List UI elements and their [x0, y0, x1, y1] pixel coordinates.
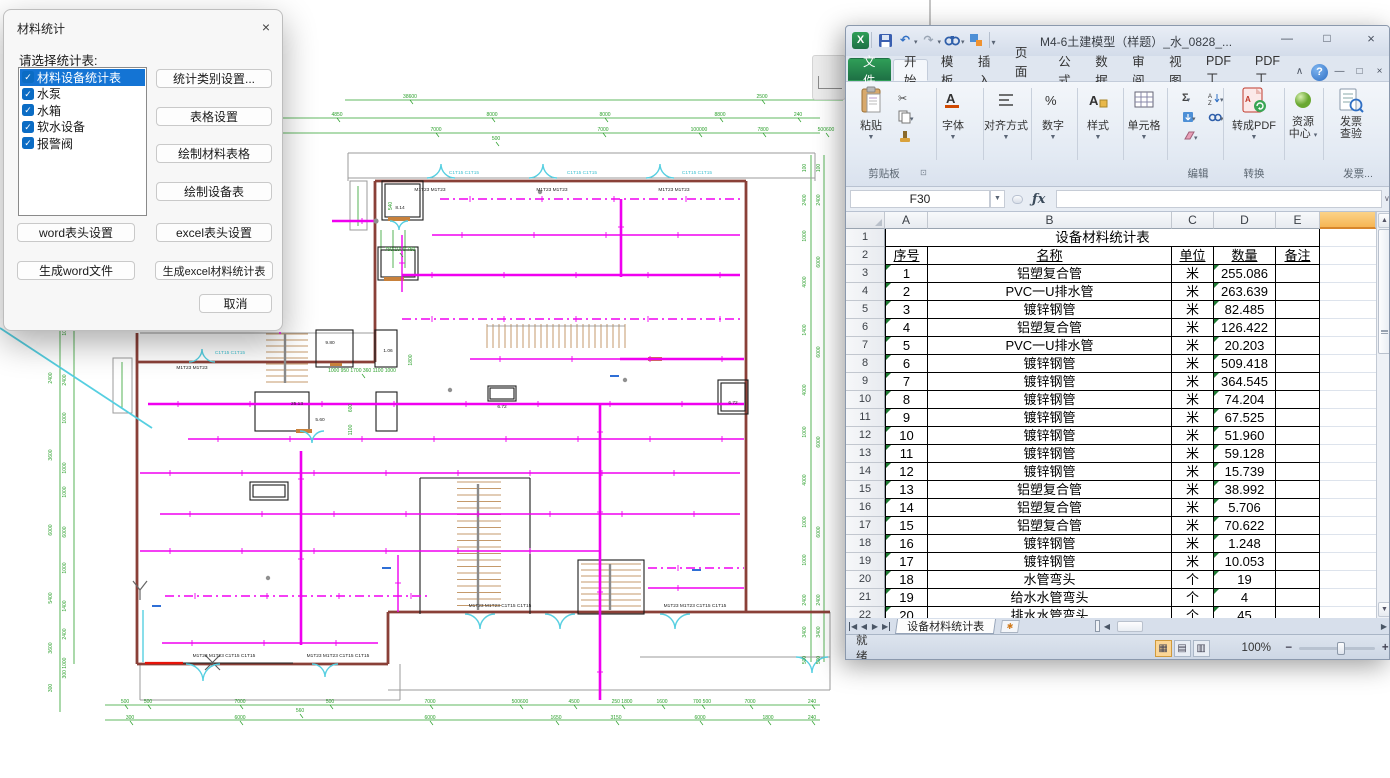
- number-as-text-triangle: [886, 301, 891, 306]
- table-cell[interactable]: [1276, 571, 1320, 589]
- table-cell[interactable]: [1276, 589, 1320, 607]
- cancel-button[interactable]: 取消: [199, 294, 272, 313]
- cad-text-label: 4000: [802, 384, 808, 395]
- table-cell[interactable]: 509.418: [1214, 355, 1276, 373]
- table-cell[interactable]: [1276, 481, 1320, 499]
- table-cell[interactable]: 74.204: [1214, 391, 1276, 409]
- table-cell[interactable]: 8: [885, 391, 928, 409]
- statistics-table-list[interactable]: ✓材料设备统计表✓水泵✓水箱✓软水设备✓报警阀: [18, 67, 147, 216]
- row-header-13[interactable]: 13: [846, 445, 885, 463]
- table-cell[interactable]: 5.706: [1214, 499, 1276, 517]
- table-cell[interactable]: 7: [885, 373, 928, 391]
- scrollbar-thumb[interactable]: [1378, 229, 1390, 354]
- table-cell[interactable]: 米: [1172, 391, 1214, 409]
- svg-text:%: %: [1045, 93, 1057, 108]
- cad-text-label: 3600: [48, 642, 54, 653]
- table-cell[interactable]: 3: [885, 301, 928, 319]
- table-cell[interactable]: 镀锌钢管: [928, 391, 1172, 409]
- excel-window: X ↶▾ ↷▾ ▾ ▾ M4-6土建模型（样题）_水_0828_... — □ …: [845, 25, 1390, 660]
- checkbox-checked-icon[interactable]: ✓: [22, 137, 34, 149]
- table-cell[interactable]: 米: [1172, 373, 1214, 391]
- cad-text-label: M1T23 M1T23 C1T15 C1T15: [469, 603, 532, 609]
- table-cell[interactable]: 19: [1214, 571, 1276, 589]
- table-cell[interactable]: 20.203: [1214, 337, 1276, 355]
- number-as-text-triangle: [886, 427, 891, 432]
- ribbon-tab-公式[interactable]: 公式: [1047, 59, 1082, 81]
- cad-text-label: 750 1000 750: [385, 247, 416, 253]
- table-cell[interactable]: 255.086: [1214, 265, 1276, 283]
- table-cell[interactable]: 镀锌钢管: [928, 355, 1172, 373]
- screen: { "dialog": { "title": "材料统计", "close": …: [0, 0, 1390, 778]
- number-as-text-triangle: [1214, 445, 1219, 450]
- formula-bar-expand-icon[interactable]: ∨: [1384, 194, 1390, 203]
- row-header-15[interactable]: 15: [846, 481, 885, 499]
- column-headers[interactable]: ABCDE: [846, 212, 1376, 229]
- row-header-5[interactable]: 5: [846, 301, 885, 319]
- convert-to-pdf-button[interactable]: A 转成PDF ▼: [1232, 86, 1276, 141]
- cad-text-label: 500: [802, 656, 808, 665]
- table-cell[interactable]: 米: [1172, 319, 1214, 337]
- table-cell[interactable]: 镀锌钢管: [928, 463, 1172, 481]
- table-cell[interactable]: 10.053: [1214, 553, 1276, 571]
- cad-text-label: 560: [296, 708, 305, 714]
- ribbon-tab-模板[interactable]: 模板: [930, 59, 965, 81]
- number-as-text-triangle: [1214, 571, 1219, 576]
- select-all-corner[interactable]: [846, 212, 885, 229]
- table-cell[interactable]: 82.485: [1214, 301, 1276, 319]
- table-cell[interactable]: [1276, 517, 1320, 535]
- table-cell[interactable]: [1276, 463, 1320, 481]
- table-cell[interactable]: [1276, 553, 1320, 571]
- table-cell[interactable]: 镀锌钢管: [928, 553, 1172, 571]
- ribbon-tab-插入[interactable]: 插入: [967, 59, 1002, 81]
- alignment-group-button[interactable]: 对齐方式▼: [984, 86, 1028, 141]
- name-box[interactable]: F30: [850, 190, 990, 208]
- last-sheet-icon[interactable]: ▶: [882, 622, 890, 631]
- row-header-4[interactable]: 4: [846, 283, 885, 301]
- clipboard-group-label: 剪贴板: [868, 166, 900, 181]
- close-icon[interactable]: ×: [254, 16, 278, 38]
- table-cell[interactable]: 15: [885, 517, 928, 535]
- workbook-minimize-icon[interactable]: —: [1331, 64, 1348, 81]
- cad-text-label: 6.72: [728, 400, 738, 406]
- table-cell[interactable]: 38.992: [1214, 481, 1276, 499]
- table-cell[interactable]: 米: [1172, 409, 1214, 427]
- table-cell[interactable]: [1276, 319, 1320, 337]
- statistics-table-option[interactable]: ✓材料设备统计表: [20, 69, 145, 86]
- table-cell[interactable]: 镀锌钢管: [928, 301, 1172, 319]
- table-cell[interactable]: [1276, 607, 1320, 618]
- paste-button[interactable]: 粘贴 ▼: [849, 86, 893, 141]
- statistics-table-option[interactable]: ✓水箱: [20, 102, 145, 119]
- table-cell[interactable]: 19: [885, 589, 928, 607]
- ribbon: 粘贴 ▼ ✂ ▾ 剪贴板 ⊡ A字体▼对齐方式▼%数字▼A样式▼单元格▼ Σ▾ …: [846, 82, 1390, 187]
- cad-text-label: M1T23 M1T23: [536, 187, 568, 193]
- fitting-dots: [266, 190, 627, 580]
- table-header-cell[interactable]: 备注: [1276, 247, 1320, 265]
- minimize-button[interactable]: —: [1270, 30, 1304, 48]
- ribbon-tab-bar: 文件开始模板插入页面布公式数据审阅视图PDF工PDF工∧?—□×: [846, 56, 1390, 82]
- cad-text-label: M1T23 M1T23 C1T15 C1T15: [307, 653, 370, 659]
- table-cell[interactable]: 铝塑复合管: [928, 319, 1172, 337]
- number-as-text-triangle: [886, 499, 891, 504]
- table-cell[interactable]: 镀锌钢管: [928, 535, 1172, 553]
- table-cell[interactable]: [1276, 445, 1320, 463]
- styles-group-button[interactable]: A样式▼: [1076, 86, 1120, 141]
- cad-text-label: 500600: [512, 699, 529, 705]
- table-cell[interactable]: 米: [1172, 517, 1214, 535]
- number-as-text-triangle: [1214, 319, 1219, 324]
- table-cell[interactable]: 16: [885, 535, 928, 553]
- cad-text-label: 6.72: [497, 404, 507, 410]
- table-cell[interactable]: [1276, 265, 1320, 283]
- cad-text-label: 2400: [802, 594, 808, 605]
- table-cell[interactable]: 51.960: [1214, 427, 1276, 445]
- draw-material-table-button[interactable]: 绘制材料表格: [156, 144, 272, 163]
- cad-text-label: 2400: [802, 194, 808, 205]
- table-cell[interactable]: 米: [1172, 535, 1214, 553]
- row-header-11[interactable]: 11: [846, 409, 885, 427]
- draw-equipment-table-button[interactable]: 绘制设备表: [156, 182, 272, 201]
- table-cell[interactable]: [1276, 427, 1320, 445]
- insert-worksheet-icon[interactable]: ✱: [1000, 620, 1020, 633]
- cad-panel-divider: [929, 0, 931, 26]
- ribbon-tab-页面布[interactable]: 页面布: [1004, 59, 1045, 81]
- cad-text-label: 240: [808, 699, 817, 705]
- number-as-text-triangle: [1214, 517, 1219, 522]
- formula-input[interactable]: [1056, 190, 1382, 208]
- help-icon[interactable]: ?: [1311, 64, 1328, 81]
- cad-text-label: 5400: [48, 592, 54, 603]
- statistics-table-option[interactable]: ✓报警阀: [20, 135, 145, 152]
- prev-sheet-icon[interactable]: ◀: [860, 622, 868, 631]
- convert-group-label: 转换: [1244, 166, 1265, 181]
- collapse-ribbon-icon[interactable]: ∧: [1291, 64, 1308, 81]
- table-cell[interactable]: PVC一U排水管: [928, 337, 1172, 355]
- number-group-button[interactable]: %数字▼: [1031, 86, 1075, 141]
- generate-word-file-button[interactable]: 生成word文件: [17, 261, 135, 280]
- table-cell[interactable]: 镀锌钢管: [928, 427, 1172, 445]
- cad-text-label: 100: [816, 164, 822, 173]
- cad-text-label: 500: [816, 656, 822, 665]
- table-cell[interactable]: 70.622: [1214, 517, 1276, 535]
- number-as-text-triangle: [1214, 481, 1219, 486]
- cad-text-label: 1000: [802, 516, 808, 527]
- row-header-6[interactable]: 6: [846, 319, 885, 337]
- row-header-16[interactable]: 16: [846, 499, 885, 517]
- table-cell[interactable]: 排水水管弯头: [928, 607, 1172, 618]
- ribbon-tab-PDF工[interactable]: PDF工: [1195, 59, 1242, 81]
- checkbox-checked-icon[interactable]: ✓: [22, 71, 34, 83]
- invoice-doc-icon: [1331, 86, 1371, 114]
- copy-icon[interactable]: ▾: [898, 109, 918, 125]
- table-cell[interactable]: 45: [1214, 607, 1276, 618]
- table-cell[interactable]: 米: [1172, 445, 1214, 463]
- formula-collapse-pill[interactable]: [1012, 195, 1023, 204]
- column-header-B[interactable]: B: [928, 212, 1172, 229]
- table-cell[interactable]: 1.248: [1214, 535, 1276, 553]
- column-header-C[interactable]: C: [1172, 212, 1214, 229]
- fill-down-icon[interactable]: ▾: [1182, 109, 1202, 125]
- table-cell[interactable]: 米: [1172, 355, 1214, 373]
- invoice-group-label: 发票...: [1343, 166, 1373, 181]
- cad-text-label: 8000: [599, 112, 610, 118]
- cad-text-label: 2400: [816, 594, 822, 605]
- table-cell[interactable]: 12: [885, 463, 928, 481]
- cad-text-label: 6000: [816, 346, 822, 357]
- ribbon-tab-数据[interactable]: 数据: [1084, 59, 1119, 81]
- name-box-dropdown-icon[interactable]: ▼: [990, 190, 1005, 208]
- sort-filter-icon[interactable]: AZ▾: [1208, 90, 1228, 106]
- excel-header-settings-button[interactable]: excel表头设置: [156, 223, 272, 242]
- table-cell[interactable]: 铝塑复合管: [928, 265, 1172, 283]
- cad-text-label: 8800: [714, 112, 725, 118]
- table-cell[interactable]: 1: [885, 265, 928, 283]
- table-cell[interactable]: 126.422: [1214, 319, 1276, 337]
- number-as-text-triangle: [1214, 409, 1219, 414]
- table-cell[interactable]: 4: [1214, 589, 1276, 607]
- page-break-view-icon[interactable]: ▥: [1193, 640, 1210, 657]
- maximize-button[interactable]: □: [1310, 30, 1344, 48]
- number-as-text-triangle: [1214, 499, 1219, 504]
- table-cell[interactable]: 铝塑复合管: [928, 517, 1172, 535]
- table-header-cell[interactable]: 序号: [885, 247, 928, 265]
- cad-text-label: M1T23 M1T23 C1T15 C1T15: [664, 603, 727, 609]
- column-header-A[interactable]: A: [885, 212, 928, 229]
- cad-text-label: 2400: [816, 194, 822, 205]
- table-cell[interactable]: 铝塑复合管: [928, 481, 1172, 499]
- ribbon-tab-视图[interactable]: 视图: [1158, 59, 1193, 81]
- row-header-14[interactable]: 14: [846, 463, 885, 481]
- table-cell[interactable]: 镀锌钢管: [928, 409, 1172, 427]
- table-cell[interactable]: 水管弯头: [928, 571, 1172, 589]
- table-header-cell[interactable]: 单位: [1172, 247, 1214, 265]
- table-cell[interactable]: [1276, 373, 1320, 391]
- cad-text-label: 2400: [62, 374, 68, 385]
- table-cell[interactable]: 10: [885, 427, 928, 445]
- table-cell[interactable]: [1276, 391, 1320, 409]
- table-cell[interactable]: 67.525: [1214, 409, 1276, 427]
- table-cell[interactable]: 给水水管弯头: [928, 589, 1172, 607]
- next-sheet-icon[interactable]: ▶: [871, 622, 879, 631]
- table-cell[interactable]: PVC一U排水管: [928, 283, 1172, 301]
- table-cell[interactable]: 15.739: [1214, 463, 1276, 481]
- ribbon-tab-开始[interactable]: 开始: [893, 59, 928, 81]
- table-cell[interactable]: 11: [885, 445, 928, 463]
- row-header-19[interactable]: 19: [846, 553, 885, 571]
- generate-excel-statistics-button[interactable]: 生成excel材料统计表: [155, 261, 273, 280]
- format-painter-brush-icon[interactable]: [898, 128, 918, 144]
- table-cell[interactable]: 59.128: [1214, 445, 1276, 463]
- horizontal-scrollbar-thumb[interactable]: [1117, 621, 1143, 632]
- statistics-table-option[interactable]: ✓软水设备: [20, 119, 145, 136]
- vertical-scrollbar[interactable]: ▲ ▼: [1376, 212, 1390, 618]
- row-header-2[interactable]: 2: [846, 247, 885, 265]
- cad-text-label: 300: [126, 715, 135, 721]
- table-cell[interactable]: 6: [885, 355, 928, 373]
- table-cell[interactable]: 米: [1172, 301, 1214, 319]
- row-header-18[interactable]: 18: [846, 535, 885, 553]
- cad-text-label: 2400: [48, 372, 54, 383]
- column-header-F-selected[interactable]: [1320, 212, 1376, 229]
- status-bar: 就绪 ▦ ▤ ▥ 100% − +: [846, 634, 1390, 660]
- number-as-text-triangle: [886, 553, 891, 558]
- table-settings-button[interactable]: 表格设置: [156, 107, 272, 126]
- table-cell[interactable]: 铝塑复合管: [928, 499, 1172, 517]
- table-cell[interactable]: [1276, 535, 1320, 553]
- scroll-right-icon[interactable]: ▶: [1381, 622, 1387, 631]
- table-header-cell[interactable]: 名称: [928, 247, 1172, 265]
- row-header-9[interactable]: 9: [846, 373, 885, 391]
- cad-text-label: 540: [388, 202, 394, 211]
- cad-text-label: 500: [121, 699, 130, 705]
- cad-text-label: C1T15 C1T15: [449, 170, 479, 176]
- table-cell[interactable]: 个: [1172, 607, 1214, 618]
- table-cell[interactable]: [1276, 283, 1320, 301]
- clear-eraser-icon[interactable]: ▾: [1182, 128, 1202, 144]
- table-cell[interactable]: 18: [885, 571, 928, 589]
- table-cell[interactable]: 米: [1172, 499, 1214, 517]
- excel-titlebar[interactable]: X ↶▾ ↷▾ ▾ ▾ M4-6土建模型（样题）_水_0828_... — □ …: [846, 26, 1390, 56]
- option-label: 水箱: [37, 102, 61, 119]
- row-header-21[interactable]: 21: [846, 589, 885, 607]
- cad-text-label: 3600: [48, 449, 54, 460]
- table-cell[interactable]: 4: [885, 319, 928, 337]
- statistics-category-settings-button[interactable]: 统计类别设置...: [156, 69, 272, 88]
- autosum-sigma-icon[interactable]: Σ▾: [1182, 90, 1202, 106]
- table-cell[interactable]: 米: [1172, 283, 1214, 301]
- tab-splitter[interactable]: ◀: [1095, 620, 1111, 632]
- cut-scissors-icon[interactable]: ✂: [898, 90, 918, 106]
- table-cell[interactable]: 20: [885, 607, 928, 618]
- cad-text-label: 9.80: [325, 340, 335, 346]
- row-header-17[interactable]: 17: [846, 517, 885, 535]
- svg-text:Z: Z: [1208, 101, 1212, 105]
- table-cell[interactable]: 镀锌钢管: [928, 445, 1172, 463]
- table-cell[interactable]: 米: [1172, 265, 1214, 283]
- table-cell[interactable]: [1276, 409, 1320, 427]
- ribbon-tab-PDF工[interactable]: PDF工: [1244, 59, 1291, 81]
- cad-text-label: 5.60: [315, 417, 325, 423]
- zoom-level: 100%: [1242, 642, 1271, 654]
- cad-text-label: M1T23 M1T23 C1T15 C1T15: [193, 653, 256, 659]
- table-cell[interactable]: 个: [1172, 571, 1214, 589]
- find-select-binoculars-icon[interactable]: ▾: [1208, 109, 1228, 125]
- table-cell[interactable]: 米: [1172, 337, 1214, 355]
- table-cell[interactable]: 米: [1172, 553, 1214, 571]
- row-header-12[interactable]: 12: [846, 427, 885, 445]
- table-title-cell[interactable]: 设备材料统计表: [885, 229, 1320, 247]
- column-header-D[interactable]: D: [1214, 212, 1276, 229]
- table-cell[interactable]: 米: [1172, 427, 1214, 445]
- page-layout-view-icon[interactable]: ▤: [1174, 640, 1191, 657]
- column-header-E[interactable]: E: [1276, 212, 1320, 229]
- table-header-cell[interactable]: 数量: [1214, 247, 1276, 265]
- clipboard-dialog-launcher[interactable]: ⊡: [920, 164, 940, 180]
- valve-marks-blue: [152, 375, 701, 607]
- table-cell[interactable]: 263.639: [1214, 283, 1276, 301]
- table-cell[interactable]: 个: [1172, 589, 1214, 607]
- cad-text-label: 500: [326, 699, 335, 705]
- sheet-tab-active[interactable]: 设备材料统计表: [895, 619, 996, 634]
- checkbox-checked-icon[interactable]: ✓: [22, 88, 34, 100]
- table-cell[interactable]: 14: [885, 499, 928, 517]
- table-cell[interactable]: 13: [885, 481, 928, 499]
- ribbon-tab-文件[interactable]: 文件: [848, 58, 891, 81]
- table-cell[interactable]: 米: [1172, 481, 1214, 499]
- cad-text-label: 25.13: [291, 401, 303, 407]
- table-cell[interactable]: [1276, 499, 1320, 517]
- cad-text-label: 7000: [424, 699, 435, 705]
- checkbox-checked-icon[interactable]: ✓: [22, 104, 34, 116]
- table-cell[interactable]: [1276, 337, 1320, 355]
- ribbon-tab-审阅[interactable]: 审阅: [1121, 59, 1156, 81]
- workbook-close-icon[interactable]: ×: [1371, 64, 1388, 81]
- resource-center-button[interactable]: 资源中心 ▾: [1283, 86, 1323, 142]
- zoom-slider-thumb[interactable]: [1337, 642, 1345, 655]
- statistics-table-option[interactable]: ✓水泵: [20, 86, 145, 103]
- word-header-settings-button[interactable]: word表头设置: [17, 223, 135, 242]
- scroll-down-icon[interactable]: ▼: [1378, 602, 1390, 617]
- row-header-3[interactable]: 3: [846, 265, 885, 283]
- cad-text-label: 250 1800: [612, 699, 633, 705]
- row-header-8[interactable]: 8: [846, 355, 885, 373]
- invoice-check-button[interactable]: 发票查验: [1331, 86, 1371, 140]
- workbook-restore-icon[interactable]: □: [1351, 64, 1368, 81]
- cell-grid[interactable]: 1设备材料统计表2序号名称单位数量备注31铝塑复合管米255.08642PVC一…: [846, 229, 1376, 618]
- table-cell[interactable]: 2: [885, 283, 928, 301]
- pdf-icon: A: [1232, 86, 1276, 114]
- table-cell[interactable]: 364.545: [1214, 373, 1276, 391]
- fx-icon[interactable]: ƒx: [1032, 192, 1045, 207]
- row-header-1[interactable]: 1: [846, 229, 885, 247]
- cad-text-label: 1800: [762, 715, 773, 721]
- row-header-7[interactable]: 7: [846, 337, 885, 355]
- number-as-text-triangle: [886, 607, 891, 612]
- view-shortcuts[interactable]: ▦ ▤ ▥: [1153, 640, 1210, 657]
- table-cell[interactable]: 5: [885, 337, 928, 355]
- checkbox-checked-icon[interactable]: ✓: [22, 121, 34, 133]
- font-group-button[interactable]: A字体▼: [931, 86, 975, 141]
- cad-text-label: 7000: [597, 127, 608, 133]
- row-header-20[interactable]: 20: [846, 571, 885, 589]
- first-sheet-icon[interactable]: ◀: [849, 622, 857, 631]
- scroll-up-icon[interactable]: ▲: [1378, 213, 1390, 228]
- row-header-22[interactable]: 22: [846, 607, 885, 618]
- normal-view-icon[interactable]: ▦: [1155, 640, 1172, 657]
- table-cell[interactable]: 17: [885, 553, 928, 571]
- row-header-10[interactable]: 10: [846, 391, 885, 409]
- cad-text-label: 1000: [62, 412, 68, 423]
- ready-status: 就绪: [856, 632, 877, 660]
- zoom-slider[interactable]: [1299, 647, 1376, 650]
- zoom-in-icon[interactable]: +: [1379, 642, 1390, 654]
- close-button[interactable]: ×: [1354, 30, 1388, 48]
- cad-text-label: 500: [492, 136, 501, 142]
- cad-text-label: 4500: [568, 699, 579, 705]
- zoom-out-icon[interactable]: −: [1283, 642, 1295, 654]
- table-cell[interactable]: 米: [1172, 463, 1214, 481]
- number-as-text-triangle: [1214, 427, 1219, 432]
- cells-group-button[interactable]: 单元格▼: [1122, 86, 1166, 141]
- table-cell[interactable]: [1276, 355, 1320, 373]
- table-cell[interactable]: 镀锌钢管: [928, 373, 1172, 391]
- option-label: 水泵: [37, 85, 61, 102]
- table-cell[interactable]: 9: [885, 409, 928, 427]
- number-as-text-triangle: [886, 535, 891, 540]
- table-cell[interactable]: [1276, 301, 1320, 319]
- number-as-text-triangle: [1214, 589, 1219, 594]
